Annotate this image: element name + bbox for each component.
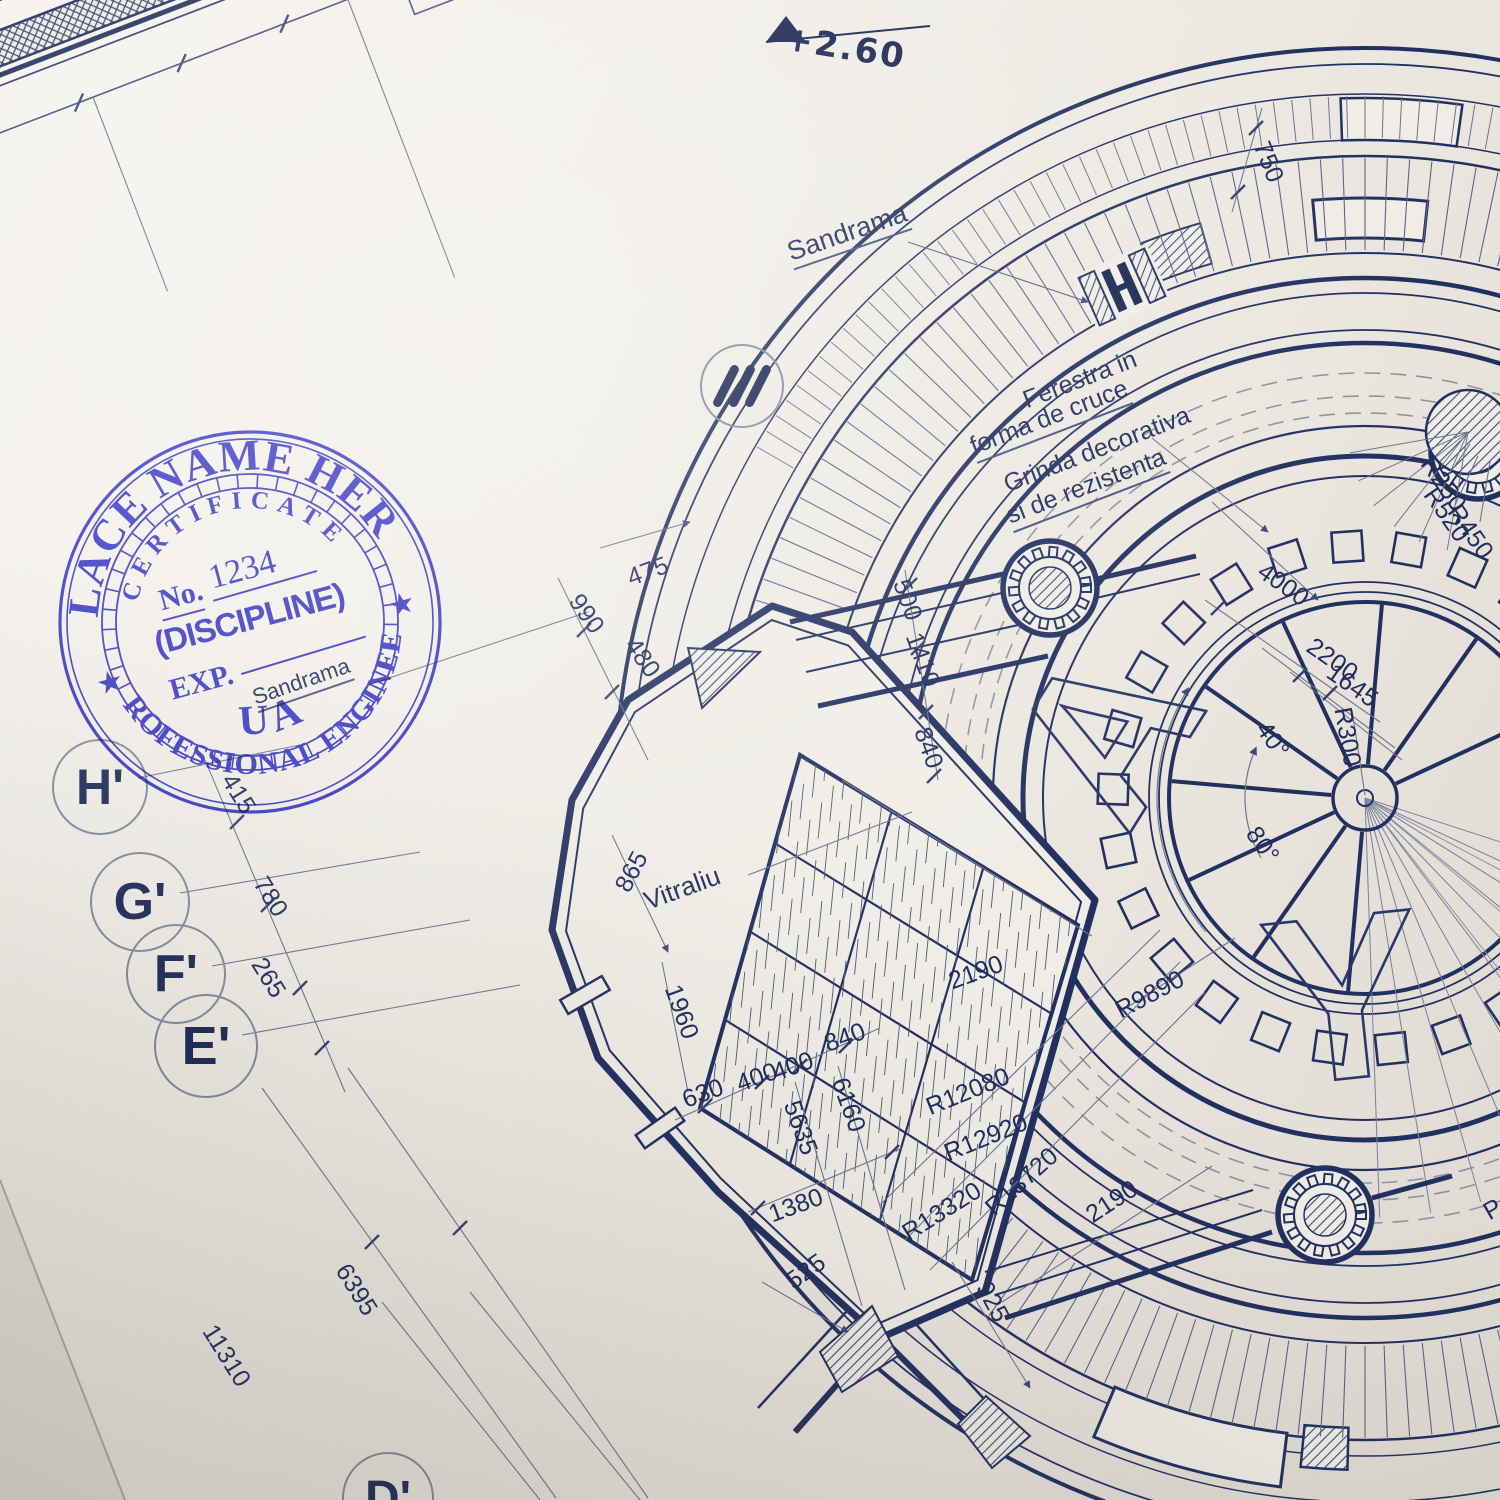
dimension-label: 630 bbox=[679, 1075, 727, 1113]
dimension-label: 475 bbox=[624, 553, 672, 591]
dimension-label: 40° bbox=[1251, 717, 1293, 762]
stamp-exp-label: EXP. bbox=[166, 658, 237, 707]
dimension-label: 925 bbox=[971, 1278, 1013, 1327]
dimension-label: 750 bbox=[1249, 138, 1288, 186]
annotation-label: Sandrama bbox=[784, 200, 912, 271]
dimension-label: 5635 bbox=[779, 1098, 822, 1159]
stamp-star-left-icon: ★ bbox=[93, 663, 128, 702]
dimension-label: 2190 bbox=[946, 952, 1007, 995]
dimension-label: 780 bbox=[248, 873, 291, 922]
dimension-label: R9890 bbox=[1112, 967, 1189, 1024]
dimension-label: 400 bbox=[769, 1048, 817, 1086]
engineer-stamp: PLACE NAME HERE PROFESSIONAL ENGINEER CE… bbox=[0, 372, 500, 872]
stamp-no-value: 1234 bbox=[205, 543, 280, 596]
dimension-label: 1410 bbox=[901, 630, 944, 691]
dimension-label: R13320 bbox=[898, 1178, 986, 1246]
dimension-label: R13720 bbox=[981, 1143, 1063, 1220]
dimension-label: 1380 bbox=[766, 1185, 827, 1228]
dimension-label: 840 bbox=[909, 724, 947, 772]
blueprint-photo: AY +2.60SandramaFerestra informa de cruc… bbox=[0, 0, 1500, 1500]
dimension-label: 500 bbox=[888, 576, 926, 624]
dimension-label: R12080 bbox=[923, 1064, 1014, 1120]
dimension-label: 80° bbox=[1241, 822, 1283, 867]
dimension-label: R12920 bbox=[941, 1110, 1032, 1166]
dimension-label: 6160 bbox=[827, 1075, 870, 1136]
dimension-label: 1645 bbox=[1322, 660, 1382, 712]
dimension-label: 4000 bbox=[1253, 559, 1313, 611]
dimension-label: 480 bbox=[620, 634, 664, 683]
dimension-label: 1960 bbox=[660, 982, 703, 1043]
annotation-label: Vitraliu bbox=[640, 862, 723, 913]
dimension-label: 525 bbox=[782, 1250, 831, 1294]
dimension-label: 265 bbox=[246, 954, 289, 1003]
stamp-star-right-icon: ★ bbox=[384, 585, 419, 624]
dimension-label: 840 bbox=[821, 1019, 869, 1057]
annotation-label: +2.60 bbox=[782, 22, 908, 75]
grid-bubble-E: E' bbox=[154, 994, 258, 1098]
dimension-label: 990 bbox=[564, 590, 608, 639]
grid-bubble-III bbox=[700, 344, 784, 428]
dimension-label: 11310 bbox=[197, 1321, 254, 1392]
dimension-label: P bbox=[1480, 1195, 1500, 1225]
dimension-label: R300 bbox=[1330, 705, 1365, 768]
dimension-label: 2190 bbox=[1082, 1176, 1142, 1227]
grid-bubble-D: D' bbox=[342, 1452, 434, 1500]
dimension-label: 6395 bbox=[331, 1260, 382, 1320]
